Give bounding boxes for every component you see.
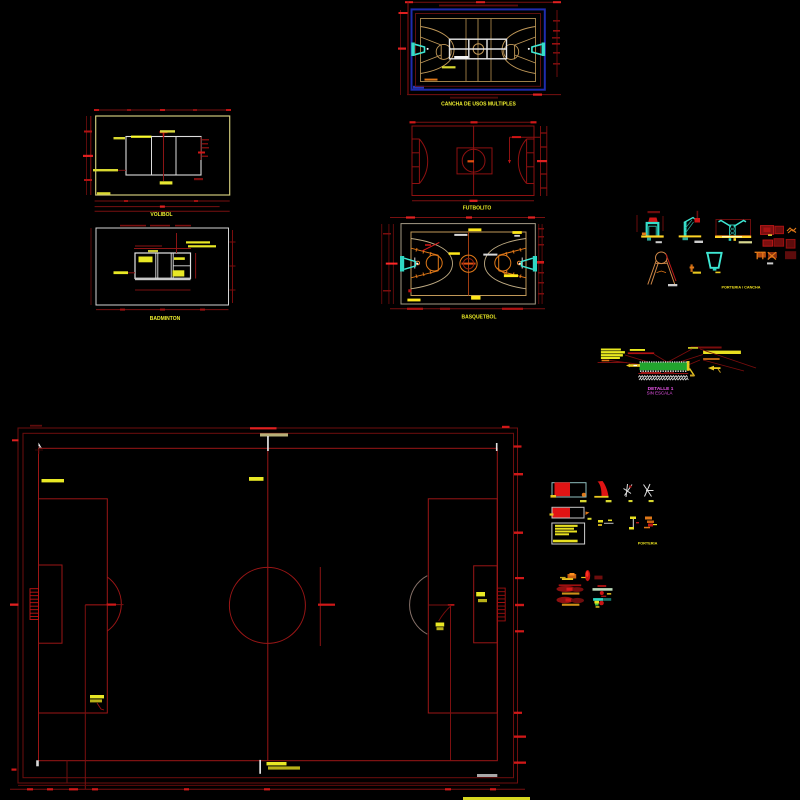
svg-text:BASQUETBOL: BASQUETBOL — [462, 315, 497, 321]
svg-text:VOLIBOL: VOLIBOL — [150, 212, 172, 218]
svg-text:CANCHA DE USOS MULTIPLES: CANCHA DE USOS MULTIPLES — [441, 101, 516, 107]
svg-text:SIN ESCALA: SIN ESCALA — [647, 391, 673, 396]
svg-text:PORTERIA: PORTERIA — [638, 541, 658, 545]
svg-text:PORTERIA / CANCHA: PORTERIA / CANCHA — [721, 285, 760, 289]
svg-text:BADMINTON: BADMINTON — [150, 316, 181, 322]
svg-text:FUTBOLITO: FUTBOLITO — [463, 206, 492, 212]
